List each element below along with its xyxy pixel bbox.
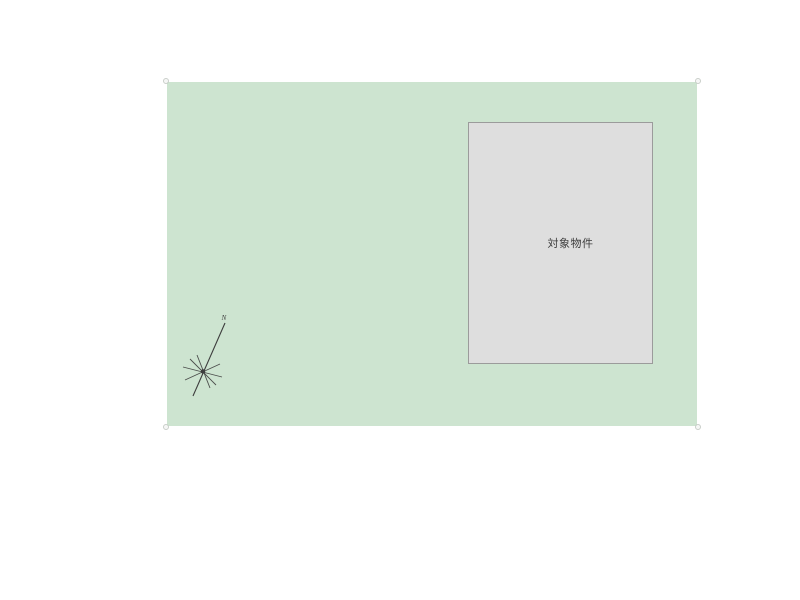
north-label: N [221,314,227,322]
site-plan-canvas: 対象物件 N [0,0,800,600]
parcel-corner-handle-top-right [695,78,701,84]
parcel-corner-handle-bottom-left [163,424,169,430]
land-parcel: 対象物件 N [167,82,697,426]
compass-center-dot [201,369,205,373]
subject-property-label: 対象物件 [548,235,594,251]
north-compass-icon: N [180,308,240,403]
parcel-corner-handle-top-left [163,78,169,84]
parcel-corner-handle-bottom-right [695,424,701,430]
subject-property-building: 対象物件 [468,122,653,364]
